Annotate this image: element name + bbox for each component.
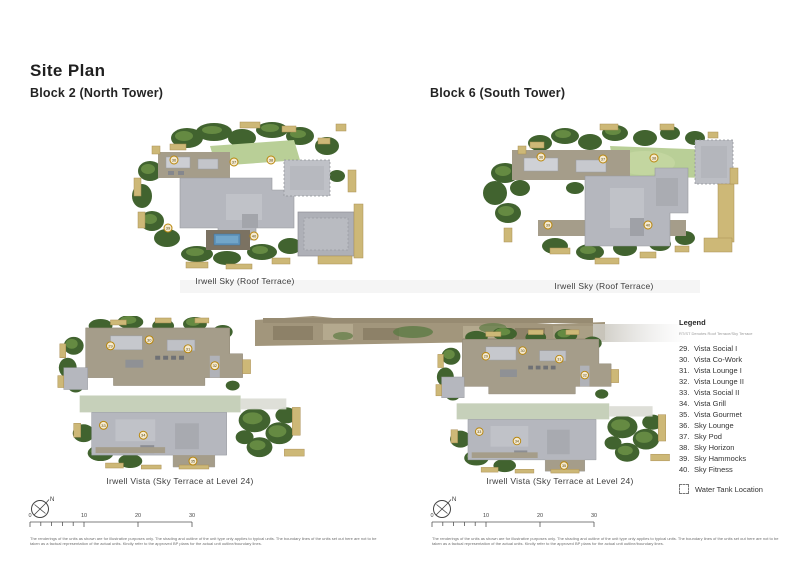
svg-text:N: N [50,497,54,503]
legend: Legend RT/ST Denotes Roof Terrace/Sky Te… [679,318,797,494]
svg-text:34: 34 [515,439,519,443]
svg-text:37: 37 [601,157,606,162]
block6-caption: Irwell Sky (Roof Terrace) [462,281,746,291]
facility-marker: 39 [164,224,172,232]
facility-marker: 36 [170,156,178,164]
legend-item: 35.Vista Gourmet [679,409,797,420]
site-plan-block6-rendering: 36 37 38 39 40 [460,118,748,272]
svg-text:10: 10 [483,513,489,519]
svg-text:33: 33 [477,430,481,434]
block6-heading: Block 6 (South Tower) [430,86,565,100]
site-plan-vista-right-rendering: 29 30 31 32 33 34 35 [425,328,688,474]
svg-text:29: 29 [484,355,488,359]
facility-marker: 29 [107,342,115,350]
legend-note: RT/ST Denotes Roof Terrace/Sky Terrace [679,331,797,336]
svg-text:33: 33 [101,423,106,428]
facility-marker: 36 [537,153,545,161]
site-plan-page: Site Plan Block 2 (North Tower) Block 6 … [0,0,800,575]
page-title: Site Plan [30,61,105,81]
block2-caption: Irwell Sky (Roof Terrace) [125,276,365,286]
svg-text:32: 32 [213,363,217,368]
svg-text:32: 32 [583,374,587,378]
facility-marker: 40 [644,221,652,229]
facility-marker: 39 [544,221,552,229]
svg-text:39: 39 [546,223,551,228]
facility-marker: 35 [189,457,197,465]
facility-marker: 37 [599,155,607,163]
svg-text:35: 35 [562,464,566,468]
facility-marker: 38 [650,154,658,162]
disclaimer-right: The renderings of the units as shown are… [432,536,780,547]
svg-text:40: 40 [252,234,257,239]
legend-item: 33.Vista Social II [679,387,797,398]
facility-marker: 30 [145,336,153,344]
svg-text:35: 35 [191,459,196,464]
facility-marker: 38 [267,156,275,164]
disclaimer-left: The renderings of the units as shown are… [30,536,378,547]
legend-item: 34.Vista Grill [679,398,797,409]
facility-marker: 33 [475,428,483,436]
svg-text:31: 31 [186,346,191,351]
site-plan-vista-left-rendering: 29 30 31 32 33 34 35 [55,316,315,470]
svg-text:0: 0 [28,513,31,519]
svg-text:40: 40 [646,223,651,228]
legend-item: 37.Sky Pod [679,431,797,442]
facility-marker: 37 [230,158,238,166]
svg-text:20: 20 [537,513,543,519]
svg-text:38: 38 [652,156,657,161]
legend-item: 38.Sky Horizon [679,442,797,453]
facility-marker: 31 [184,345,192,353]
svg-text:39: 39 [166,226,171,231]
water-tank-icon [679,484,689,494]
svg-text:20: 20 [135,513,141,519]
roof-stub-left [442,377,465,398]
water-tank-row: Water Tank Location [679,484,797,494]
block2-heading: Block 2 (North Tower) [30,86,163,100]
facility-marker: 40 [250,232,258,240]
legend-item: 31.Vista Lounge I [679,365,797,376]
svg-text:34: 34 [141,433,146,438]
svg-text:30: 30 [147,337,152,342]
svg-text:37: 37 [232,160,237,165]
facility-marker: 34 [139,431,147,439]
svg-text:10: 10 [81,513,87,519]
facility-marker: 33 [100,421,108,429]
svg-text:0: 0 [430,513,433,519]
svg-text:N: N [452,497,456,503]
facility-marker: 29 [482,352,490,360]
svg-text:30: 30 [521,349,525,353]
legend-item: 40.Sky Fitness [679,464,797,475]
facility-marker: 32 [581,371,589,379]
svg-text:30: 30 [591,513,597,519]
scale-bar: 0 10 20 30 [430,508,600,532]
terrace-band [457,403,610,419]
facility-marker: 32 [211,362,219,370]
svg-text:29: 29 [108,343,113,348]
legend-item: 32.Vista Lounge II [679,376,797,387]
roof-stub-left [64,368,88,390]
facility-marker: 30 [519,347,527,355]
legend-title: Legend [679,318,797,327]
svg-text:31: 31 [557,357,561,361]
legend-item: 36.Sky Lounge [679,420,797,431]
scale-bar: 0 10 20 30 [28,508,198,532]
svg-text:36: 36 [539,155,544,160]
facility-marker: 31 [556,355,564,363]
svg-text:30: 30 [189,513,195,519]
water-tank-label: Water Tank Location [695,485,763,494]
terrace-band [80,395,241,412]
legend-item: 39.Sky Hammocks [679,453,797,464]
site-plan-block2-rendering: 36 37 38 39 40 [122,116,368,272]
facility-marker: 34 [513,437,521,445]
svg-text:36: 36 [172,158,177,163]
legend-item: 29.Vista Social I [679,343,797,354]
vista-right-caption: Irwell Vista (Sky Terrace at Level 24) [440,476,680,486]
facility-marker: 35 [560,462,568,470]
svg-text:38: 38 [269,158,274,163]
vista-left-caption: Irwell Vista (Sky Terrace at Level 24) [60,476,300,486]
legend-item: 30.Vista Co-Work [679,354,797,365]
